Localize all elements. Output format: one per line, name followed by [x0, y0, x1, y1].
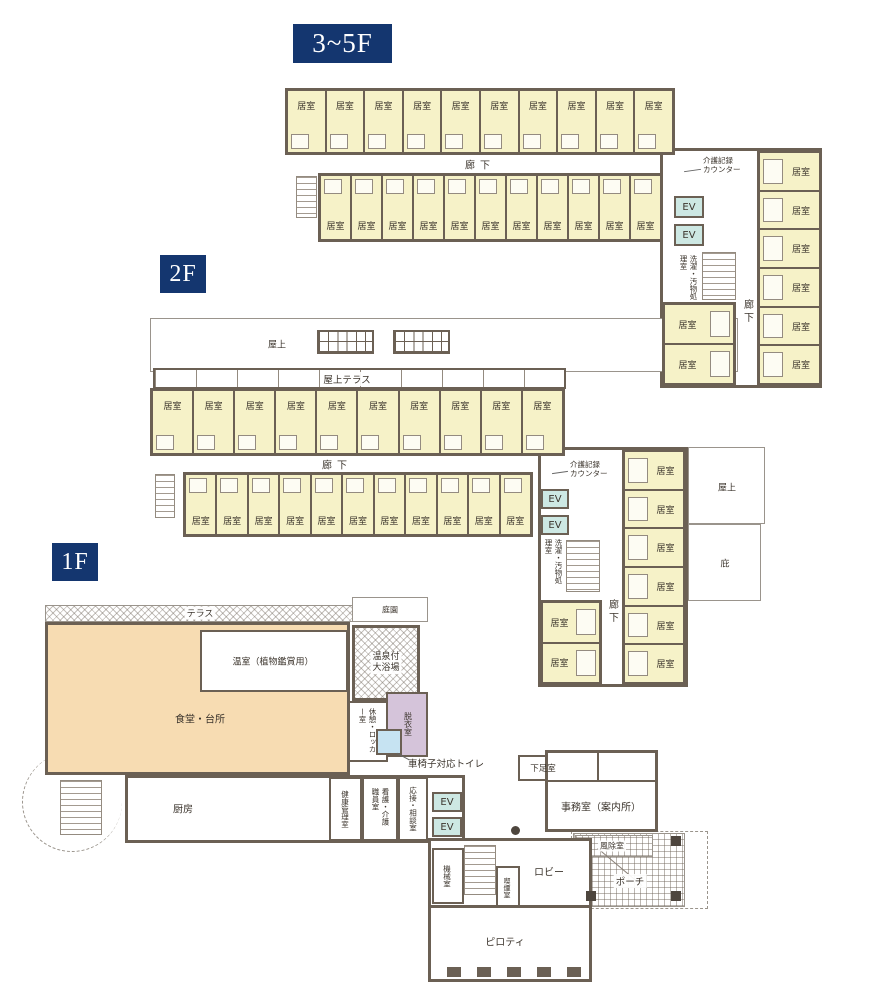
pillar — [447, 967, 461, 977]
wheelchair-toilet — [376, 729, 402, 755]
stairs — [296, 176, 317, 218]
eaves-label: 庇 — [720, 557, 729, 570]
room-cell: 居室 — [625, 529, 683, 568]
garden-label: 庭園 — [382, 605, 398, 616]
room-row-lower: 居室 居室 居室 居室 居室 居室 居室 居室 — [183, 472, 533, 537]
unit-bath — [628, 458, 648, 483]
health-room-label: 健康管理室 — [340, 790, 351, 828]
care-record-counter-note: 介護記録 カウンター — [703, 156, 741, 174]
room-cell: 居室 — [543, 644, 599, 683]
unit-bath — [448, 179, 466, 194]
porch-column — [671, 891, 681, 901]
unit-bath — [510, 179, 528, 194]
room-label: 居室 — [492, 399, 510, 412]
unit-bath — [378, 478, 396, 493]
room-cell: 居室 — [442, 91, 481, 152]
room-label: 居室 — [533, 399, 551, 412]
room-cell: 居室 — [625, 645, 683, 682]
corridor-label: 廊下 — [605, 599, 620, 625]
room-label: 居室 — [369, 399, 387, 412]
room-label: 居室 — [413, 99, 431, 112]
room-label: 居室 — [567, 99, 585, 112]
unit-bath — [504, 478, 522, 493]
room-label: 居室 — [452, 99, 470, 112]
room-cell: 居室 — [635, 91, 672, 152]
room-label: 居室 — [786, 281, 816, 294]
stairs — [464, 845, 496, 895]
unit-bath — [407, 134, 425, 149]
room-cell: 居室 — [665, 345, 733, 383]
smoking-room-label: 喫煙室 — [502, 878, 512, 899]
room-cell: 居室 — [153, 391, 194, 453]
porch-column — [671, 836, 681, 846]
unit-bath — [320, 435, 338, 450]
wall-divider — [597, 752, 599, 780]
laundry-room-label: 洗濯・汚物処理室 — [543, 539, 563, 585]
unit-bath — [330, 134, 348, 149]
wing-right-rooms: 居室 居室 居室 居室 居室 居室 — [622, 449, 686, 685]
room-label: 居室 — [651, 464, 680, 477]
kitchen-label: 厨房 — [173, 801, 193, 816]
unit-bath — [346, 478, 364, 493]
wall-divider — [548, 780, 655, 782]
rest-locker-label: 休憩・ロッカー室 — [357, 708, 377, 754]
room-label: 居室 — [326, 219, 344, 232]
unit-bath — [763, 236, 783, 261]
room-cell: 居室 — [520, 91, 559, 152]
floorplan-canvas: 3~5F 介護記録 カウンター EV EV 洗濯・汚物処理室 廊下 居室 居室 … — [0, 0, 870, 1000]
column-dot — [511, 826, 520, 835]
room-cell: 居室 — [186, 475, 217, 534]
room-cell: 居室 — [507, 176, 538, 239]
unit-bath — [628, 574, 648, 599]
room-label: 居室 — [374, 99, 392, 112]
room-cell: 居室 — [760, 192, 819, 231]
room-cell: 居室 — [400, 391, 441, 453]
floor-1-tag: 1F — [52, 543, 98, 581]
stairs — [702, 252, 736, 300]
room-cell: 居室 — [358, 391, 399, 453]
elevator: EV — [541, 515, 569, 535]
unit-bath — [479, 179, 497, 194]
room-cell: 居室 — [194, 391, 235, 453]
roof-terrace-label: 屋上テラス — [321, 372, 372, 386]
room-label: 居室 — [651, 657, 680, 670]
piloti-label: ピロティ — [485, 934, 524, 949]
room-cell: 居室 — [558, 91, 597, 152]
unit-bath — [763, 159, 783, 184]
staff-room-label: 看護・介護職員室 — [370, 788, 390, 830]
room-cell: 居室 — [760, 153, 819, 192]
room-cell: 居室 — [760, 308, 819, 347]
room-label: 居室 — [546, 656, 573, 669]
room-cell: 居室 — [280, 475, 311, 534]
unit-bath — [628, 535, 648, 560]
room-cell: 居室 — [441, 391, 482, 453]
dining-label: 食堂・台所 — [175, 711, 225, 726]
room-label: 居室 — [606, 99, 624, 112]
room-label: 居室 — [651, 580, 680, 593]
room-label: 居室 — [192, 514, 210, 527]
room-cell: 居室 — [375, 475, 406, 534]
room-label: 居室 — [651, 541, 680, 554]
machine-room-label: 機械室 — [442, 865, 453, 888]
room-label: 居室 — [786, 204, 816, 217]
room-cell: 居室 — [625, 452, 683, 491]
room-label: 居室 — [450, 219, 468, 232]
office-block — [545, 750, 658, 832]
unit-bath — [368, 134, 386, 149]
room-label: 居室 — [286, 514, 304, 527]
room-cell: 居室 — [501, 475, 530, 534]
wheelchair-toilet-label: 車椅子対応トイレ — [408, 756, 484, 770]
room-cell: 居室 — [543, 603, 599, 644]
stairs — [566, 540, 600, 592]
room-cell: 居室 — [600, 176, 631, 239]
room-cell: 居室 — [631, 176, 660, 239]
consult-room-label: 応接・相談室 — [408, 787, 419, 832]
dressing-room-label: 脱衣室 — [403, 712, 414, 736]
unit-bath — [279, 435, 297, 450]
unit-bath — [445, 134, 463, 149]
room-cell: 居室 — [352, 176, 383, 239]
room-label: 居室 — [543, 219, 561, 232]
room-label: 居室 — [164, 399, 182, 412]
room-cell: 居室 — [414, 176, 445, 239]
skylight-grid — [393, 330, 450, 354]
room-label: 居室 — [512, 219, 530, 232]
room-cell: 居室 — [476, 176, 507, 239]
room-cell: 居室 — [482, 391, 523, 453]
unit-bath — [523, 134, 541, 149]
room-cell: 居室 — [469, 475, 500, 534]
room-label: 居室 — [328, 399, 346, 412]
unit-bath — [484, 134, 502, 149]
unit-bath — [600, 134, 618, 149]
unit-bath — [361, 435, 379, 450]
floor-3-5-tag: 3~5F — [293, 24, 392, 63]
unit-bath — [526, 435, 544, 450]
terrace-label: テラス — [185, 607, 216, 620]
room-cell: 居室 — [343, 475, 374, 534]
unit-bath — [763, 352, 783, 377]
room-label: 居室 — [255, 514, 273, 527]
exterior-stairs — [60, 780, 102, 835]
room-label: 居室 — [410, 399, 428, 412]
room-label: 居室 — [388, 219, 406, 232]
room-label: 居室 — [357, 219, 375, 232]
room-cell: 居室 — [760, 346, 819, 383]
room-cell: 居室 — [760, 269, 819, 308]
room-cell: 居室 — [235, 391, 276, 453]
porch-column — [586, 891, 596, 901]
room-label: 居室 — [636, 219, 654, 232]
room-cell: 居室 — [383, 176, 414, 239]
room-label: 居室 — [529, 99, 547, 112]
porch-label: ポーチ — [614, 874, 647, 888]
room-cell: 居室 — [327, 91, 366, 152]
unit-bath — [386, 179, 404, 194]
unit-bath — [441, 478, 459, 493]
elevator: EV — [674, 196, 704, 218]
room-cell: 居室 — [625, 607, 683, 646]
unit-bath — [403, 435, 421, 450]
room-label: 居室 — [506, 514, 524, 527]
room-label: 居室 — [443, 514, 461, 527]
unit-bath — [763, 198, 783, 223]
room-label: 居室 — [205, 399, 223, 412]
room-cell: 居室 — [249, 475, 280, 534]
unit-bath — [485, 435, 503, 450]
room-label: 居室 — [645, 99, 663, 112]
room-cell: 居室 — [538, 176, 569, 239]
room-row-lower: 居室 居室 居室 居室 居室 居室 居室 居室 — [318, 173, 663, 242]
unit-bath — [572, 179, 590, 194]
unit-bath — [628, 651, 648, 676]
corridor-label: 廊下 — [740, 299, 755, 325]
windbreak-label: 風除室 — [598, 841, 626, 852]
unit-bath — [417, 179, 435, 194]
wing-right-rooms: 居室 居室 居室 居室 居室 居室 — [757, 150, 822, 386]
lobby-label: ロビー — [534, 864, 564, 879]
unit-bath — [409, 478, 427, 493]
unit-bath — [628, 613, 648, 638]
room-cell: 居室 — [665, 305, 733, 345]
unit-bath — [638, 134, 656, 149]
room-label: 居室 — [786, 358, 816, 371]
room-label: 居室 — [412, 514, 430, 527]
room-label: 居室 — [605, 219, 623, 232]
elevator: EV — [674, 224, 704, 246]
unit-bath — [189, 478, 207, 493]
pillar — [567, 967, 581, 977]
elevator: EV — [541, 489, 569, 509]
elevator: EV — [432, 792, 462, 812]
room-cell: 居室 — [569, 176, 600, 239]
unit-bath — [472, 478, 490, 493]
unit-bath — [238, 435, 256, 450]
room-cell: 居室 — [597, 91, 636, 152]
room-cell: 居室 — [217, 475, 248, 534]
room-label: 居室 — [574, 219, 592, 232]
room-label: 居室 — [490, 99, 508, 112]
room-cell: 居室 — [276, 391, 317, 453]
elevator: EV — [432, 817, 462, 837]
unit-bath — [324, 179, 342, 194]
room-label: 居室 — [786, 242, 816, 255]
unit-bath — [561, 134, 579, 149]
room-cell: 居室 — [404, 91, 443, 152]
room-label: 居室 — [546, 616, 573, 629]
room-label: 居室 — [668, 318, 707, 331]
room-label: 居室 — [651, 503, 680, 516]
room-label: 居室 — [475, 514, 493, 527]
floor-2-tag: 2F — [160, 255, 206, 293]
room-cell: 居室 — [481, 91, 520, 152]
greenhouse-label: 温室（植物鑑賞用） — [232, 655, 313, 668]
unit-bath — [763, 275, 783, 300]
room-cell: 居室 — [625, 568, 683, 607]
unit-bath — [634, 179, 652, 194]
wing-left-rooms: 居室 居室 — [540, 600, 602, 685]
stairs — [155, 474, 175, 518]
unit-bath — [291, 134, 309, 149]
room-cell: 居室 — [406, 475, 437, 534]
room-cell: 居室 — [365, 91, 404, 152]
room-cell: 居室 — [317, 391, 358, 453]
unit-bath — [603, 179, 621, 194]
skylight-grid — [317, 330, 374, 354]
room-row-upper: 居室 居室 居室 居室 居室 居室 居室 居室 — [150, 388, 565, 456]
room-label: 居室 — [786, 320, 816, 333]
room-label: 居室 — [451, 399, 469, 412]
room-label: 居室 — [481, 219, 499, 232]
unit-bath — [576, 650, 596, 676]
pillar — [507, 967, 521, 977]
room-cell: 居室 — [288, 91, 327, 152]
room-cell: 居室 — [438, 475, 469, 534]
unit-bath — [220, 478, 238, 493]
unit-bath — [315, 478, 333, 493]
roof-label: 屋上 — [268, 338, 286, 351]
corridor-label: 廊下 — [322, 457, 352, 472]
pillar — [537, 967, 551, 977]
room-cell: 居室 — [760, 230, 819, 269]
unit-bath — [197, 435, 215, 450]
unit-bath — [156, 435, 174, 450]
unit-bath — [444, 435, 462, 450]
laundry-room-label: 洗濯・汚物処理室 — [678, 255, 698, 301]
room-label: 居室 — [651, 619, 680, 632]
unit-bath — [710, 351, 730, 377]
unit-bath — [576, 609, 596, 635]
room-cell: 居室 — [312, 475, 343, 534]
unit-bath — [355, 179, 373, 194]
room-cell: 居室 — [625, 491, 683, 530]
unit-bath — [628, 497, 648, 522]
room-label: 居室 — [668, 358, 707, 371]
unit-bath — [710, 311, 730, 337]
unit-bath — [252, 478, 270, 493]
room-label: 居室 — [336, 99, 354, 112]
hot-spring-bath-label: 温泉付 大浴場 — [370, 652, 401, 674]
pillar — [477, 967, 491, 977]
unit-bath — [283, 478, 301, 493]
corridor-label: 廊下 — [465, 157, 495, 172]
room-cell: 居室 — [445, 176, 476, 239]
unit-bath — [541, 179, 559, 194]
office-label: 事務室（案内所） — [561, 799, 641, 814]
room-label: 居室 — [318, 514, 336, 527]
room-label: 居室 — [419, 219, 437, 232]
wing-roof-label: 屋上 — [718, 481, 736, 494]
wing-left-rooms: 居室 居室 — [662, 302, 736, 386]
room-label: 居室 — [297, 99, 315, 112]
room-cell: 居室 — [321, 176, 352, 239]
room-label: 居室 — [223, 514, 241, 527]
care-record-counter-note: 介護記録 カウンター — [570, 460, 608, 478]
room-label: 居室 — [349, 514, 367, 527]
room-row-upper: 居室 居室 居室 居室 居室 居室 居室 居室 — [285, 88, 675, 155]
room-label: 居室 — [287, 399, 305, 412]
room-cell: 居室 — [523, 391, 562, 453]
unit-bath — [763, 314, 783, 339]
room-label: 居室 — [380, 514, 398, 527]
room-label: 居室 — [246, 399, 264, 412]
room-label: 居室 — [786, 165, 816, 178]
shoe-room-label: 下足室 — [530, 762, 556, 774]
